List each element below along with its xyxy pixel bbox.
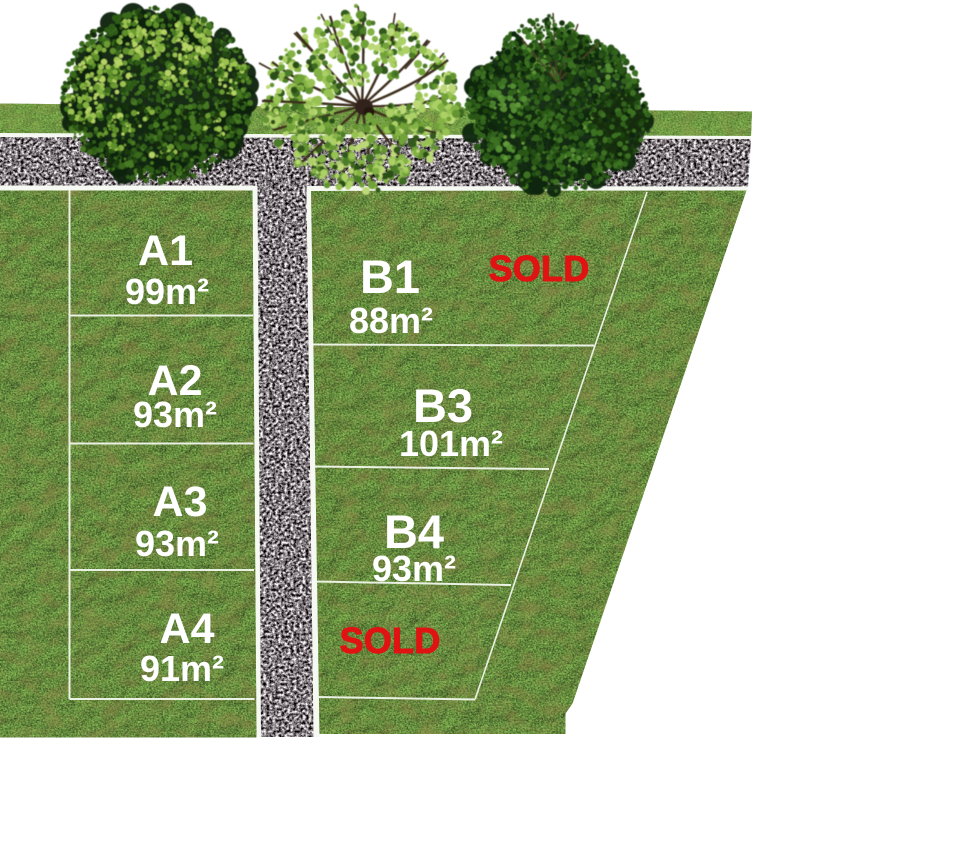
svg-text:B1: B1 [360, 250, 420, 303]
svg-text:93m²: 93m² [135, 523, 219, 564]
svg-text:A4: A4 [160, 605, 215, 653]
svg-text:A3: A3 [153, 478, 208, 526]
svg-text:SOLD: SOLD [340, 620, 441, 661]
svg-text:99m²: 99m² [125, 271, 209, 312]
svg-text:101m²: 101m² [399, 423, 503, 464]
svg-text:91m²: 91m² [140, 648, 224, 689]
svg-text:A1: A1 [138, 227, 193, 275]
svg-text:88m²: 88m² [349, 300, 433, 341]
svg-text:93m²: 93m² [133, 394, 217, 435]
svg-text:SOLD: SOLD [489, 248, 590, 289]
svg-text:93m²: 93m² [372, 548, 456, 589]
